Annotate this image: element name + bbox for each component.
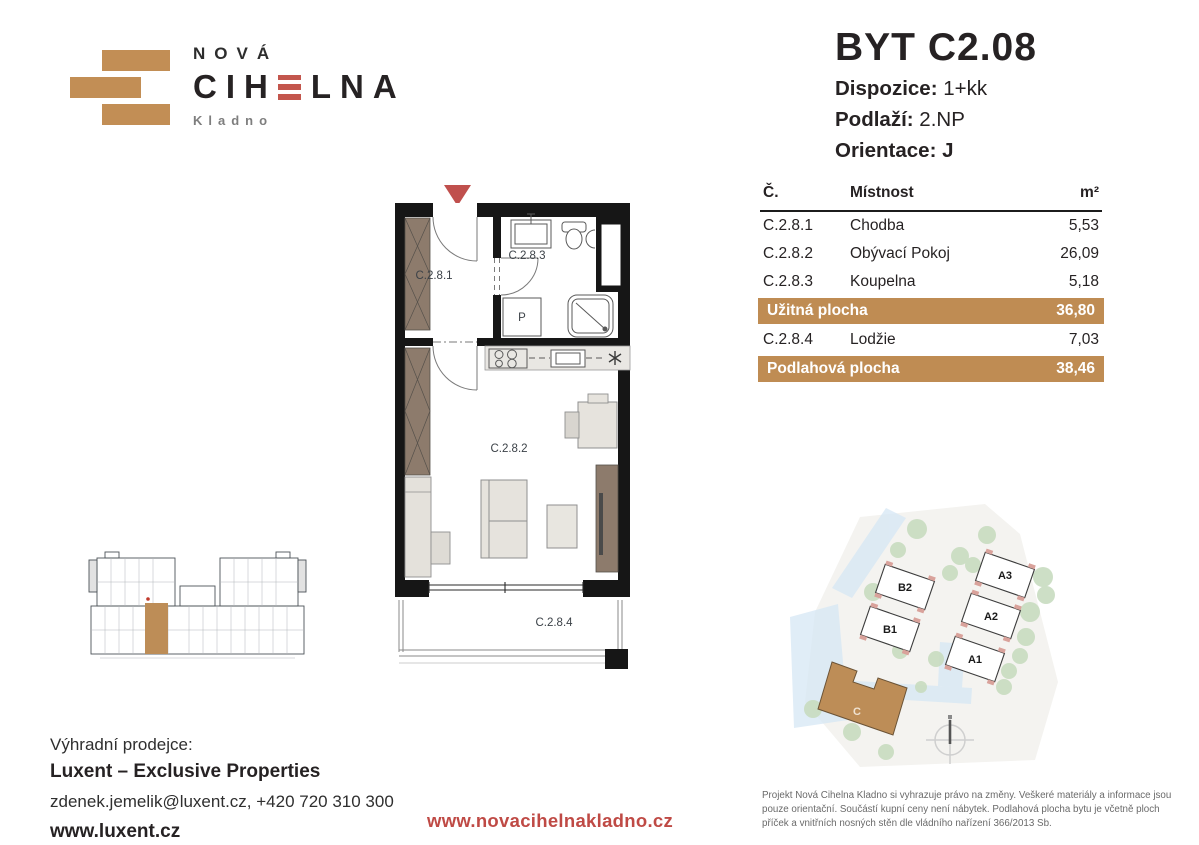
brick-icon [102, 50, 170, 71]
disclaimer-text: Projekt Nová Cihelna Kladno si vyhrazuje… [762, 789, 1186, 830]
col-area: m² [1029, 184, 1099, 202]
brochure-page: NOVÁ CIHLNA Kladno BYT C2.08 Dispozice: … [0, 0, 1199, 845]
highlighted-unit [145, 603, 168, 654]
usable-area-band: Užitná plocha 36,80 [758, 298, 1104, 324]
logo: NOVÁ CIHLNA Kladno [193, 44, 406, 128]
loggia-wall [605, 649, 628, 669]
key-plan-outline [89, 552, 306, 654]
col-number: Č. [763, 184, 850, 202]
seller-contact[interactable]: zdenek.jemelik@luxent.cz, +420 720 310 3… [50, 792, 394, 812]
logo-brand: CIHLNA [193, 68, 406, 106]
loggia [399, 600, 628, 663]
table-row: C.2.8.2 Obývací Pokoj 26,09 [760, 240, 1102, 268]
table-row: C.2.8.1 Chodba 5,53 [760, 212, 1102, 240]
kitchen-counter [485, 346, 630, 370]
table-row: C.2.8.4 Lodžie 7,03 [760, 326, 1102, 354]
logo-brand-post: LNA [311, 68, 406, 106]
building-label-a1: A1 [968, 654, 982, 666]
building-label-a2: A2 [984, 611, 998, 623]
seller-website-link[interactable]: www.luxent.cz [50, 821, 394, 843]
floor-plan: P [393, 180, 633, 672]
logo-bricks-icon [70, 50, 212, 131]
building-label-b2: B2 [898, 582, 912, 594]
table-header: Č. Místnost m² [760, 184, 1102, 212]
logo-brand-pre: CIH [193, 68, 277, 106]
table-row: C.2.8.3 Koupelna 5,18 [760, 268, 1102, 296]
seller-label: Výhradní prodejce: [50, 735, 394, 755]
entrance-marker-icon [444, 185, 471, 206]
brick-icon [70, 77, 141, 98]
logo-nova: NOVÁ [193, 44, 406, 64]
unit-dispozice: Dispozice: 1+kk [835, 77, 1037, 101]
room-label-bath: C.2.8.3 [508, 250, 545, 262]
building-label-c: C [853, 706, 861, 718]
unit-podlazi: Podlaží: 2.NP [835, 108, 1037, 132]
area-table: Č. Místnost m² C.2.8.1 Chodba 5,53 C.2.8… [760, 184, 1102, 384]
unit-header: BYT C2.08 Dispozice: 1+kk Podlaží: 2.NP … [835, 26, 1037, 163]
room-label-living: C.2.8.2 [490, 443, 527, 455]
seller-name: Luxent – Exclusive Properties [50, 761, 394, 783]
unit-orientace: Orientace: J [835, 139, 1037, 163]
brick-icon [102, 104, 170, 125]
room-label-loggia: C.2.8.4 [535, 617, 573, 629]
unit-title: BYT C2.08 [835, 26, 1037, 70]
project-website-link[interactable]: www.novacihelnakladno.cz [427, 810, 673, 832]
key-plan [85, 548, 310, 670]
room-label-hall: C.2.8.1 [415, 270, 452, 282]
washer-label: P [518, 312, 526, 324]
site-plan: B2 B1 A3 A2 A1 C [790, 492, 1075, 778]
brick-e-icon [278, 75, 301, 100]
total-area-band: Podlahová plocha 38,46 [758, 356, 1104, 382]
unit-marker-icon [146, 597, 150, 601]
building-label-a3: A3 [998, 570, 1012, 582]
logo-city: Kladno [193, 113, 406, 128]
key-plan-units [91, 558, 304, 658]
seller-block: Výhradní prodejce: Luxent – Exclusive Pr… [50, 735, 394, 843]
col-room: Místnost [850, 184, 1029, 202]
building-label-b1: B1 [883, 624, 897, 636]
